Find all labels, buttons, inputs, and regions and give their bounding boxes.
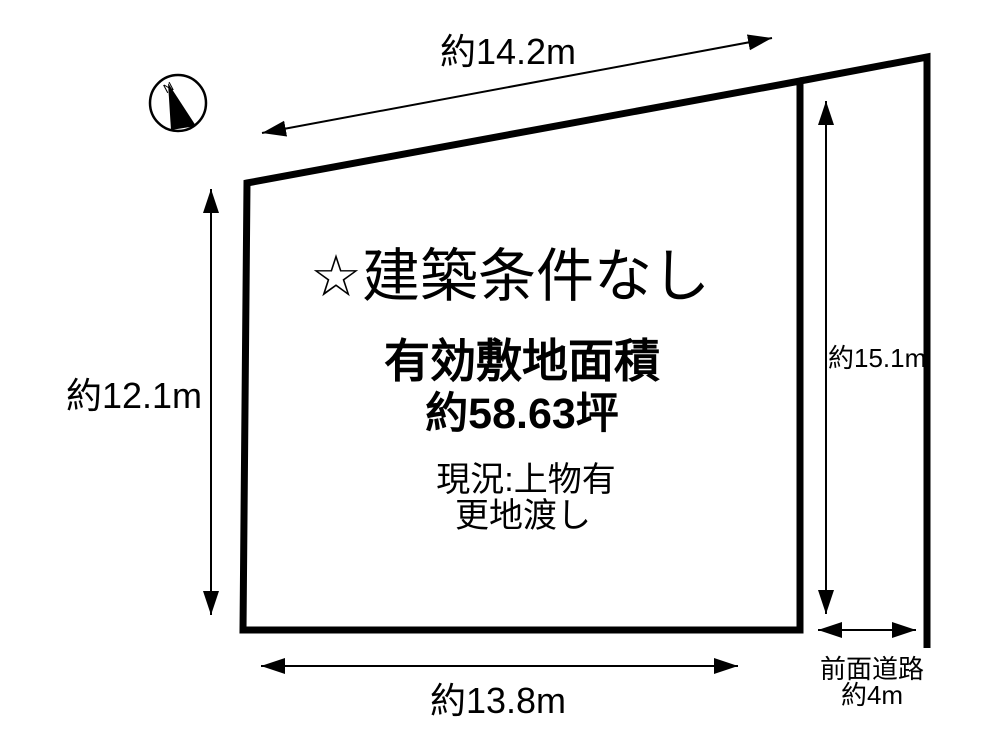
- dim-bottom-label: 約13.8m: [430, 680, 566, 721]
- site-status-line2: 更地渡し: [455, 497, 591, 535]
- site-status-line1: 現況:上物有: [436, 461, 615, 499]
- dim-right-label: 約15.1m: [828, 343, 926, 373]
- site-area-value: 約58.63坪: [425, 390, 619, 438]
- dim-top-label: 約14.2m: [440, 31, 576, 72]
- dim-left-label: 約12.1m: [66, 375, 202, 416]
- land-plot-diagram: N 約14.2m 約12.1m 約15.1m 約13.8m 前面道路 約4m ☆…: [0, 0, 1000, 750]
- plot-title: ☆建築条件なし: [310, 244, 710, 309]
- north-compass: N: [150, 75, 206, 131]
- road-width-label: 約4m: [841, 680, 903, 710]
- diagram-svg: N 約14.2m 約12.1m 約15.1m 約13.8m 前面道路 約4m ☆…: [0, 0, 1000, 750]
- site-area-label: 有効敷地面積: [384, 335, 660, 387]
